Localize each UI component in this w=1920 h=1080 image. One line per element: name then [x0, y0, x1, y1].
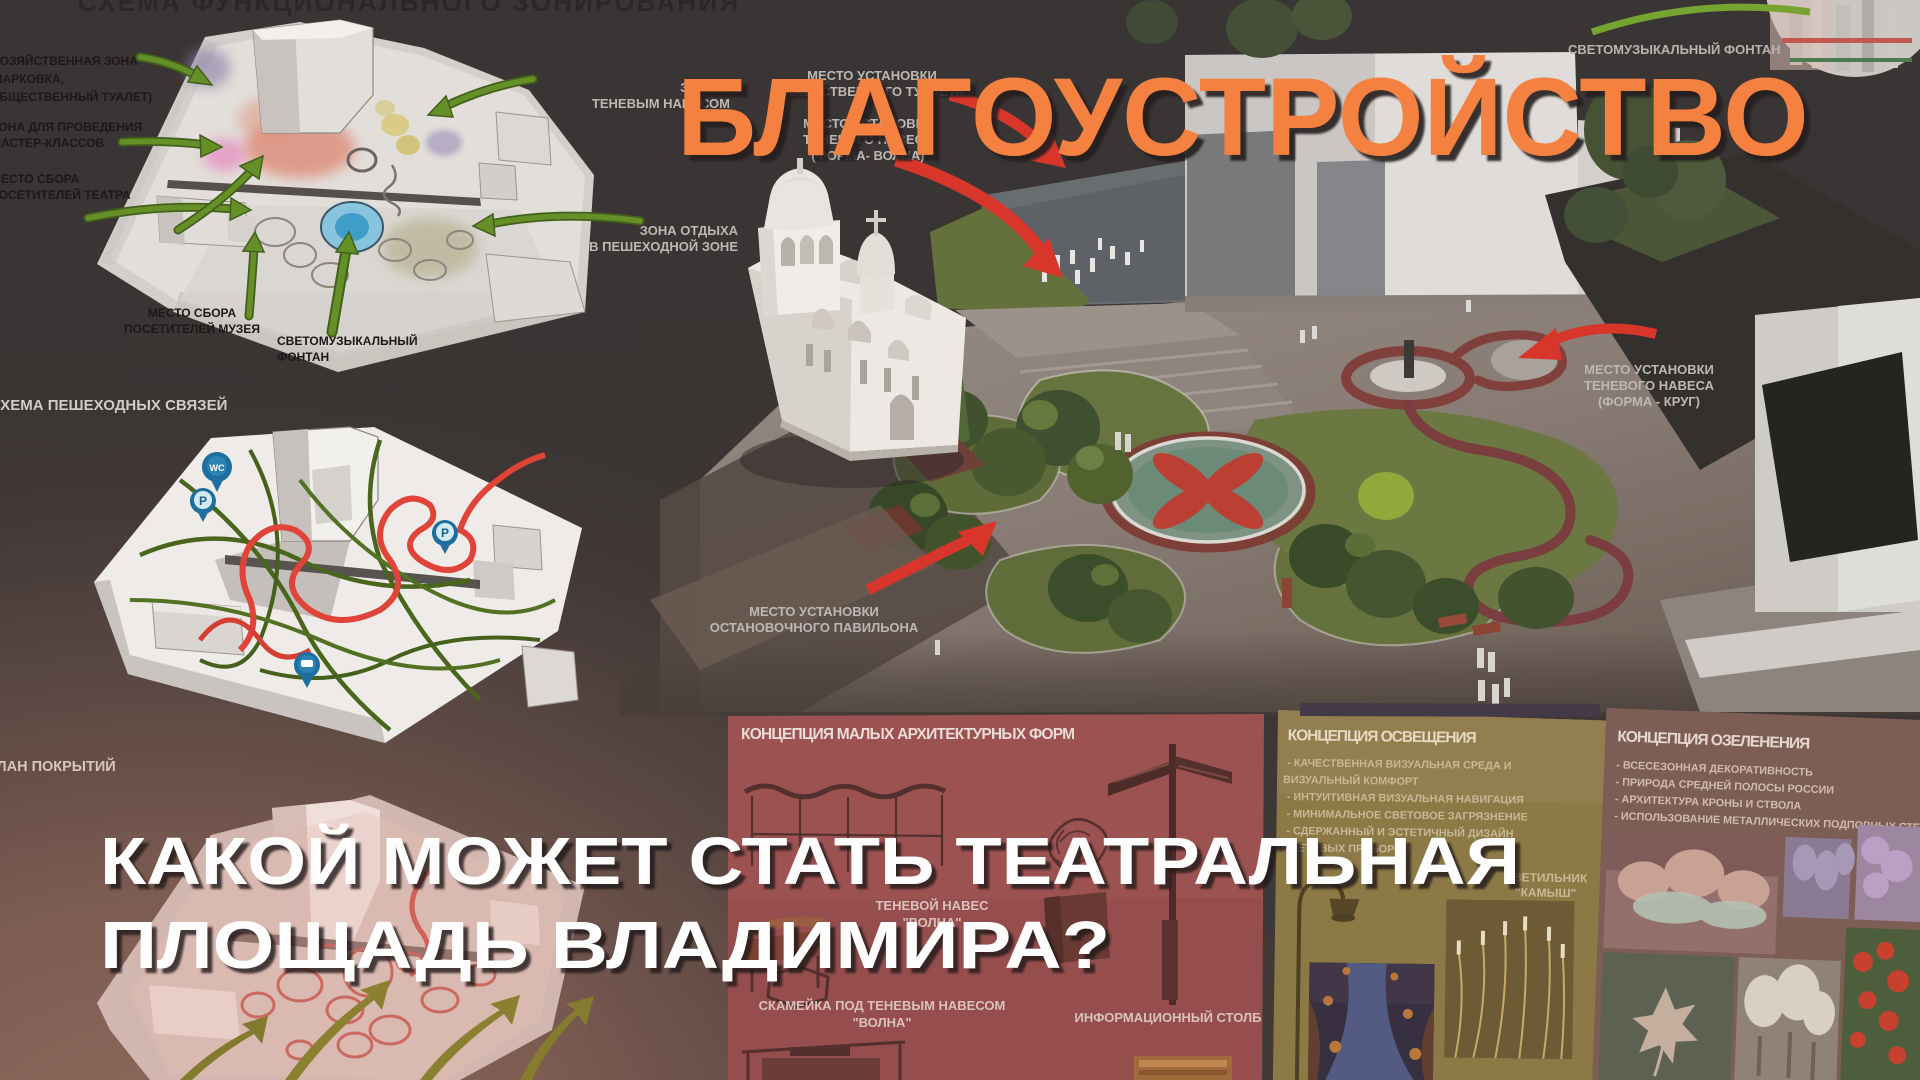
svg-text:КОНЦЕПЦИЯ ОСВЕЩЕНИЯ: КОНЦЕПЦИЯ ОСВЕЩЕНИЯ: [1288, 727, 1477, 747]
svg-text:ПОСЕТИТЕЛЕЙ МУЗЕЯ: ПОСЕТИТЕЛЕЙ МУЗЕЯ: [124, 321, 260, 336]
svg-text:ВИЗУАЛЬНЫЙ КОМФОРТ: ВИЗУАЛЬНЫЙ КОМФОРТ: [1283, 773, 1419, 788]
svg-text:(ФОРМА - КРУГ): (ФОРМА - КРУГ): [1598, 394, 1700, 409]
svg-text:ОСТАНОВОЧНОГО ПАВИЛЬОНА: ОСТАНОВОЧНОГО ПАВИЛЬОНА: [710, 620, 919, 635]
svg-text:СВЕТОМУЗЫКАЛЬНЫЙ: СВЕТОМУЗЫКАЛЬНЫЙ: [277, 333, 418, 348]
svg-text:ТЕНЕВОГО НАВЕСА: ТЕНЕВОГО НАВЕСА: [1584, 378, 1715, 393]
svg-text:P: P: [199, 494, 207, 508]
svg-text:WC: WC: [210, 463, 225, 473]
svg-text:ЗОНА ОТДЫХА: ЗОНА ОТДЫХА: [640, 223, 739, 238]
svg-text:КОНЦЕПЦИЯ МАЛЫХ АРХИТЕКТУРНЫХ: КОНЦЕПЦИЯ МАЛЫХ АРХИТЕКТУРНЫХ ФОРМ: [741, 726, 1075, 743]
svg-text:ХОЗЯЙСТВЕННАЯ ЗОНА: ХОЗЯЙСТВЕННАЯ ЗОНА: [0, 53, 138, 68]
svg-text:БЛАГОУСТРОЙСТВО: БЛАГОУСТРОЙСТВО: [677, 55, 1809, 179]
svg-text:СХЕМА ФУНКЦИОНАЛЬНОГО ЗОНИРОВА: СХЕМА ФУНКЦИОНАЛЬНОГО ЗОНИРОВАНИЯ: [78, 0, 738, 17]
svg-text:ЗОНА ДЛЯ ПРОВЕДЕНИЯ: ЗОНА ДЛЯ ПРОВЕДЕНИЯ: [0, 120, 142, 134]
svg-text:МЕСТО УСТАНОВКИ: МЕСТО УСТАНОВКИ: [1584, 362, 1714, 377]
svg-text:СХЕМА ПЕШЕХОДНЫХ СВЯЗЕЙ: СХЕМА ПЕШЕХОДНЫХ СВЯЗЕЙ: [0, 396, 227, 414]
svg-text:(ПАРКОВКА,: (ПАРКОВКА,: [0, 72, 64, 86]
svg-text:МЕСТО СБОРА: МЕСТО СБОРА: [0, 172, 80, 186]
svg-text:ОБЩЕСТВЕННЫЙ ТУАЛЕТ): ОБЩЕСТВЕННЫЙ ТУАЛЕТ): [0, 89, 152, 104]
svg-text:"КАМЫШ": "КАМЫШ": [1515, 885, 1576, 900]
svg-text:ИНФОРМАЦИОННЫЙ СТОЛБ: ИНФОРМАЦИОННЫЙ СТОЛБ: [1074, 1010, 1261, 1025]
svg-text:ФОНТАН: ФОНТАН: [277, 350, 329, 364]
svg-text:ПОСЕТИТЕЛЕЙ ТЕАТРА: ПОСЕТИТЕЛЕЙ ТЕАТРА: [0, 187, 131, 202]
svg-text:"ВОЛНА": "ВОЛНА": [852, 1015, 911, 1030]
svg-text:МЕСТО УСТАНОВКИ: МЕСТО УСТАНОВКИ: [749, 604, 879, 619]
svg-text:СКАМЕЙКА ПОД ТЕНЕВЫМ НАВЕСОМ: СКАМЕЙКА ПОД ТЕНЕВЫМ НАВЕСОМ: [759, 998, 1006, 1013]
svg-text:ПЛОЩАДЬ ВЛАДИМИРА?: ПЛОЩАДЬ ВЛАДИМИРА?: [100, 908, 1110, 983]
svg-text:МАСТЕР-КЛАССОВ: МАСТЕР-КЛАССОВ: [0, 136, 105, 150]
svg-text:КАКОЙ МОЖЕТ СТАТЬ ТЕАТРАЛЬНАЯ: КАКОЙ МОЖЕТ СТАТЬ ТЕАТРАЛЬНАЯ: [100, 823, 1520, 899]
svg-text:СВЕТОМУЗЫКАЛЬНЫЙ ФОНТАН: СВЕТОМУЗЫКАЛЬНЫЙ ФОНТАН: [1568, 42, 1780, 57]
svg-text:МЕСТО СБОРА: МЕСТО СБОРА: [148, 306, 237, 320]
svg-text:ПЛАН ПОКРЫТИЙ: ПЛАН ПОКРЫТИЙ: [0, 757, 116, 775]
svg-text:В ПЕШЕХОДНОЙ ЗОНЕ: В ПЕШЕХОДНОЙ ЗОНЕ: [589, 239, 738, 254]
svg-text:P: P: [441, 526, 449, 540]
